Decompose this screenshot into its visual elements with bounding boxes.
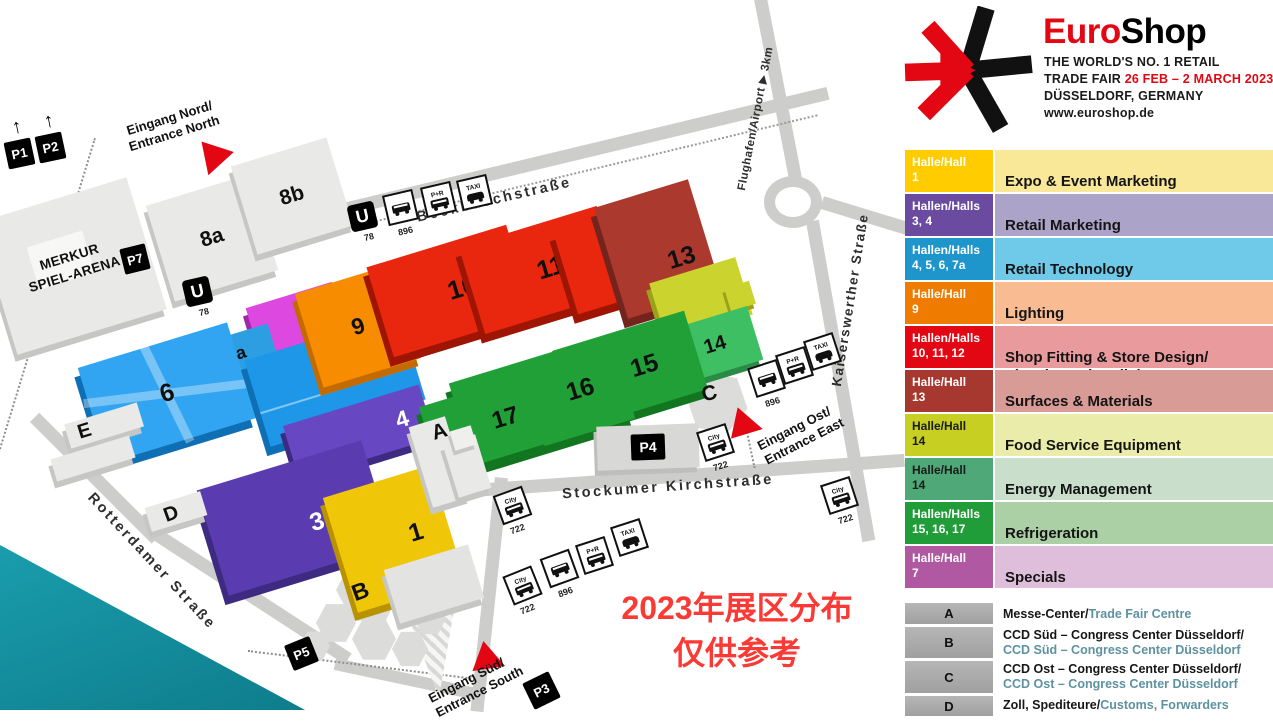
bus-line-896: 896 [397,224,414,237]
euroshop-logo-star [903,6,1038,141]
legend-hall-word: Hallen/Halls [912,331,989,346]
brand-title-shop: Shop [1121,12,1206,51]
legend-category: Surfaces & Materials [1005,393,1153,410]
ubahn-line-78: 78 [198,306,210,318]
hall-14-label: 14 [701,331,729,360]
legend-hall-word: Hallen/Halls [912,507,989,522]
legend-hall-numbers: 14 [912,434,989,449]
facility-letter-a: A [905,603,993,624]
legend-category: Refrigeration [1005,525,1098,542]
city-bus-icon: City [502,565,542,605]
legend-row: Hallen/Halls10, 11, 12 Shop Fitting & St… [905,326,1273,370]
legend-hall-word: Halle/Hall [912,463,989,478]
legend-row: Hallen/Halls4, 5, 6, 7a Retail Technolog… [905,238,1273,282]
legend-hall-numbers: 4, 5, 6, 7a [912,258,989,273]
legend-category: Food Service Equipment [1005,437,1181,454]
legend-hall-cell: Halle/Hall14 [905,458,993,500]
facility-letter: A [944,606,953,621]
legend-hall-numbers: 15, 16, 17 [912,522,989,537]
legend-hall-cell: Hallen/Halls10, 11, 12 [905,326,993,368]
hall-1-label: 1 [405,516,427,548]
hall-3-label: 3 [306,506,328,538]
bus-line-722: 722 [837,512,854,526]
legend-category: Energy Management [1005,481,1152,498]
legend-hall-word: Halle/Hall [912,155,989,170]
ubahn-icon: U [346,200,378,232]
hall-8b-label: 8b [277,181,307,211]
facility-en: Trade Fair Centre [1088,607,1191,621]
legend-category-cell: Refrigeration [995,502,1273,544]
entrance-north-marker [192,141,234,180]
legend-category-cell: Retail Marketing [995,194,1273,236]
legend-hall-cell: Hallen/Halls15, 16, 17 [905,502,993,544]
legend-hall-word: Hallen/Halls [912,243,989,258]
legend-row: Halle/Hall1 Expo & Event Marketing [905,150,1273,194]
facility-letter: D [944,699,953,714]
legend-category: Lighting [1005,305,1064,322]
legend-hall-numbers: 9 [912,302,989,317]
facility-text-b: CCD Süd – Congress Center Düsseldorf/CCD… [1003,628,1271,657]
bus-glyph [757,372,777,385]
legend-hall-cell: Halle/Hall13 [905,370,993,412]
bus-glyph [391,202,410,214]
brand-line-2-black: TRADE FAIR [1044,72,1125,86]
legend-category-cell: Retail Technology [995,238,1273,280]
facility-letter: C [944,670,953,685]
bus-line-722: 722 [519,602,537,617]
facility-letter-c: C [905,661,993,693]
annotation-chinese: 2023年展区分布 仅供参考 [592,586,882,676]
brand-title: EuroShop [1043,12,1206,52]
legend-hall-numbers: 3, 4 [912,214,989,229]
legend-hall-numbers: 7 [912,566,989,581]
legend-category: Specials [1005,569,1066,586]
bus-glyph [550,562,570,576]
parking-garage-p4: P4 [596,423,699,471]
facility-letter-b: B [905,627,993,658]
legend-row: Halle/Hall14 Food Service Equipment [905,414,1273,458]
bus-stop-icon [540,549,580,589]
legend-category-cell: Energy Management [995,458,1273,500]
facility-en: CCD Ost – Congress Center Düsseldorf [1003,677,1271,692]
legend-hall-word: Halle/Hall [912,419,989,434]
parking-icon-p1: P1 [3,137,35,169]
hall-16-label: 16 [563,371,598,407]
legend-category-cell: Shop Fitting & Store Design/ Visual Merc… [995,326,1273,368]
hall-17-label: 17 [489,401,523,436]
arrow-up-icon: ↑ [42,109,57,134]
legend-row: Halle/Hall14 Energy Management [905,458,1273,502]
parking-icon-p4: P4 [631,433,666,460]
euroshop-site-plan: { "header": { "title_red": "Euro", "titl… [0,0,1273,710]
facility-text-c: CCD Ost – Congress Center Düsseldorf/CCD… [1003,662,1271,691]
legend-row: Hallen/Halls3, 4 Retail Marketing [905,194,1273,238]
legend-hall-numbers: 1 [912,170,989,185]
legend-hall-numbers: 14 [912,478,989,493]
legend-category: Retail Marketing [1005,217,1121,234]
legend-row: Halle/Hall7 Specials [905,546,1273,590]
legend-hall-word: Halle/Hall [912,287,989,302]
legend-category-cell: Food Service Equipment [995,414,1273,456]
hall-15-label: 15 [627,348,662,384]
parking-icon-p3: P3 [522,671,561,710]
facility-de: Messe-Center/ [1003,607,1088,621]
facility-de: CCD Ost – Congress Center Düsseldorf/ [1003,662,1241,676]
brand-line-2-dates: 26 FEB – 2 MARCH 2023 [1125,72,1273,86]
legend-row: Hallen/Halls15, 16, 17 Refrigeration [905,502,1273,546]
brand-website: www.euroshop.de [1044,106,1154,120]
parking-icon-p2: P2 [34,131,66,163]
facility-de: CCD Süd – Congress Center Düsseldorf/ [1003,628,1244,642]
legend-hall-cell: Hallen/Halls4, 5, 6, 7a [905,238,993,280]
legend-hall-word: Halle/Hall [912,375,989,390]
legend-row: Halle/Hall13 Surfaces & Materials [905,370,1273,414]
facility-letter: B [944,635,953,650]
legend-hall-cell: Hallen/Halls3, 4 [905,194,993,236]
bus-line-896: 896 [764,395,781,409]
ubahn-line-78: 78 [363,231,375,243]
hall-9-label: 9 [348,311,368,341]
entrance-south-label: Eingang Süd/ Entrance South [426,615,592,721]
ubahn-u: U [354,205,371,228]
legend-category: Expo & Event Marketing [1005,173,1177,190]
brand-line-1: THE WORLD'S NO. 1 RETAIL [1044,55,1220,69]
facility-text-d: Zoll, Spediteure/Customs, Forwarders [1003,698,1271,713]
legend-hall-numbers: 10, 11, 12 [912,346,989,361]
legend-category-cell: Expo & Event Marketing [995,150,1273,192]
legend-hall-cell: Halle/Hall1 [905,150,993,192]
taxi-stand-icon: TAXI [610,518,649,557]
park-and-ride-icon: P+R [575,536,614,575]
bus-stop-icon [382,189,419,226]
legend-hall-word: Halle/Hall [912,551,989,566]
legend-hall-cell: Halle/Hall9 [905,282,993,324]
brand-line-3: DÜSSELDORF, GERMANY [1044,89,1203,103]
facility-en: CCD Süd – Congress Center Düsseldorf [1003,643,1271,658]
hall-8a-label: 8a [197,223,226,253]
bus-line-896: 896 [557,585,575,600]
facility-text-a: Messe-Center/Trade Fair Centre [1003,607,1271,622]
legend-category-cell: Surfaces & Materials [995,370,1273,412]
legend-hall-numbers: 13 [912,390,989,405]
arrow-up-icon: ↑ [10,115,25,140]
ccd-sued-hex [352,616,396,662]
legend-category-cell: Specials [995,546,1273,588]
legend-category-cell: Lighting [995,282,1273,324]
legend-hall-word: Hallen/Halls [912,199,989,214]
bus-line-722: 722 [509,522,527,537]
ubahn-u: U [189,280,206,303]
legend-row: Halle/Hall9 Lighting [905,282,1273,326]
legend-hall-cell: Halle/Hall7 [905,546,993,588]
brand-title-euro: Euro [1043,12,1121,51]
ubahn-icon: U [181,275,213,307]
brand-line-2: TRADE FAIR 26 FEB – 2 MARCH 2023 [1044,72,1273,86]
roundabout [764,176,822,228]
legend-hall-cell: Halle/Hall14 [905,414,993,456]
facility-letter-d: D [905,696,993,716]
legend-category: Retail Technology [1005,261,1133,278]
